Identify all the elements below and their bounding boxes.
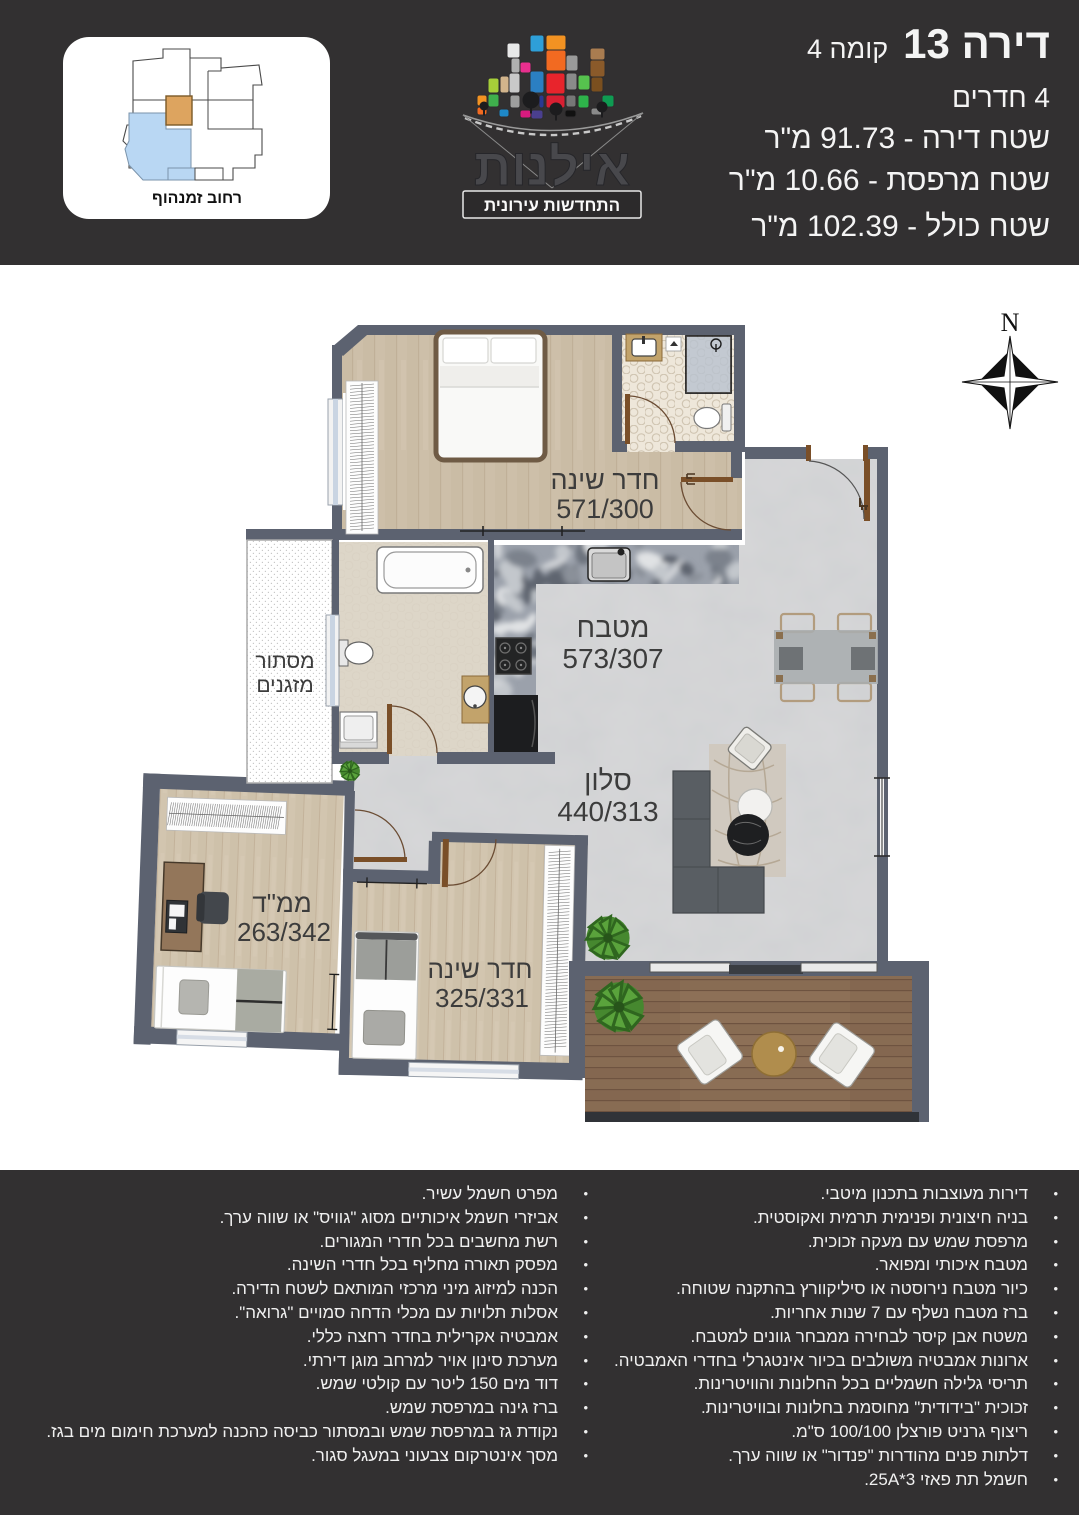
svg-text:חדר שינה: חדר שינה — [550, 465, 659, 495]
svg-text:מזגנים: מזגנים — [256, 674, 313, 697]
svg-text:התחדשות עירונית: התחדשות עירונית — [484, 196, 620, 215]
svg-text:סלון: סלון — [584, 765, 632, 796]
svg-text:571/300: 571/300 — [556, 494, 654, 524]
svg-text:440/313: 440/313 — [557, 796, 658, 827]
svg-text:263/342: 263/342 — [237, 917, 331, 947]
svg-text:325/331: 325/331 — [435, 983, 529, 1013]
svg-text:אילנות: אילנות — [474, 139, 630, 197]
svg-text:N: N — [1001, 308, 1020, 337]
svg-text:ממ"ד: ממ"ד — [252, 888, 311, 918]
svg-text:מסתור: מסתור — [255, 650, 314, 673]
svg-text:רחוב זמנהוף: רחוב זמנהוף — [152, 190, 242, 207]
svg-text:מטבח: מטבח — [577, 612, 650, 643]
svg-text:573/307: 573/307 — [562, 643, 663, 674]
svg-text:חדר שינה: חדר שינה — [428, 954, 533, 984]
